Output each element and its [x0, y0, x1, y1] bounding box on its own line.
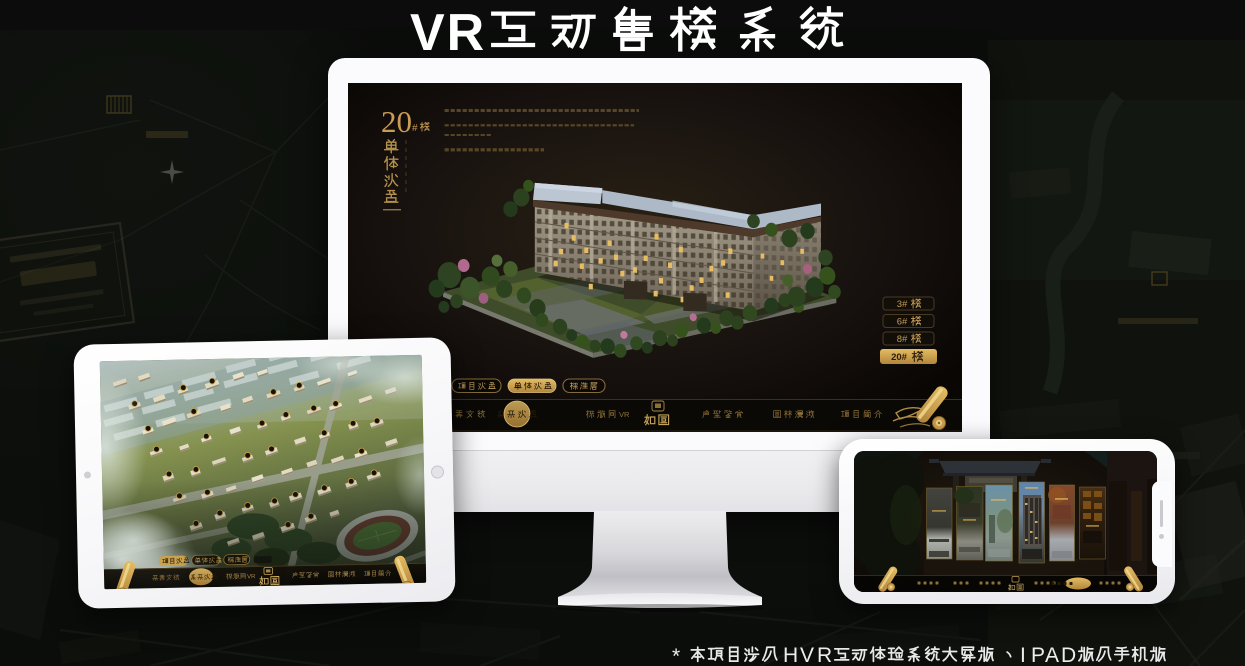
svg-text:R: R [817, 644, 832, 666]
svg-text:8#: 8# [897, 334, 908, 345]
svg-text:VR: VR [247, 574, 256, 580]
svg-text:A: A [1045, 644, 1059, 666]
svg-text:D: D [1061, 644, 1076, 666]
svg-text:VR: VR [410, 4, 486, 62]
svg-text:20: 20 [381, 104, 412, 139]
svg-text:3#: 3# [897, 299, 908, 310]
svg-text:#: # [412, 123, 418, 134]
svg-text:6#: 6# [897, 317, 908, 328]
svg-text:I: I [1020, 644, 1026, 666]
svg-text:H: H [783, 644, 798, 666]
svg-text:VR: VR [619, 410, 630, 419]
svg-text:P: P [1031, 644, 1045, 666]
svg-text:20#: 20# [891, 352, 908, 363]
svg-text:V: V [800, 644, 814, 666]
svg-text:*: * [672, 645, 680, 666]
